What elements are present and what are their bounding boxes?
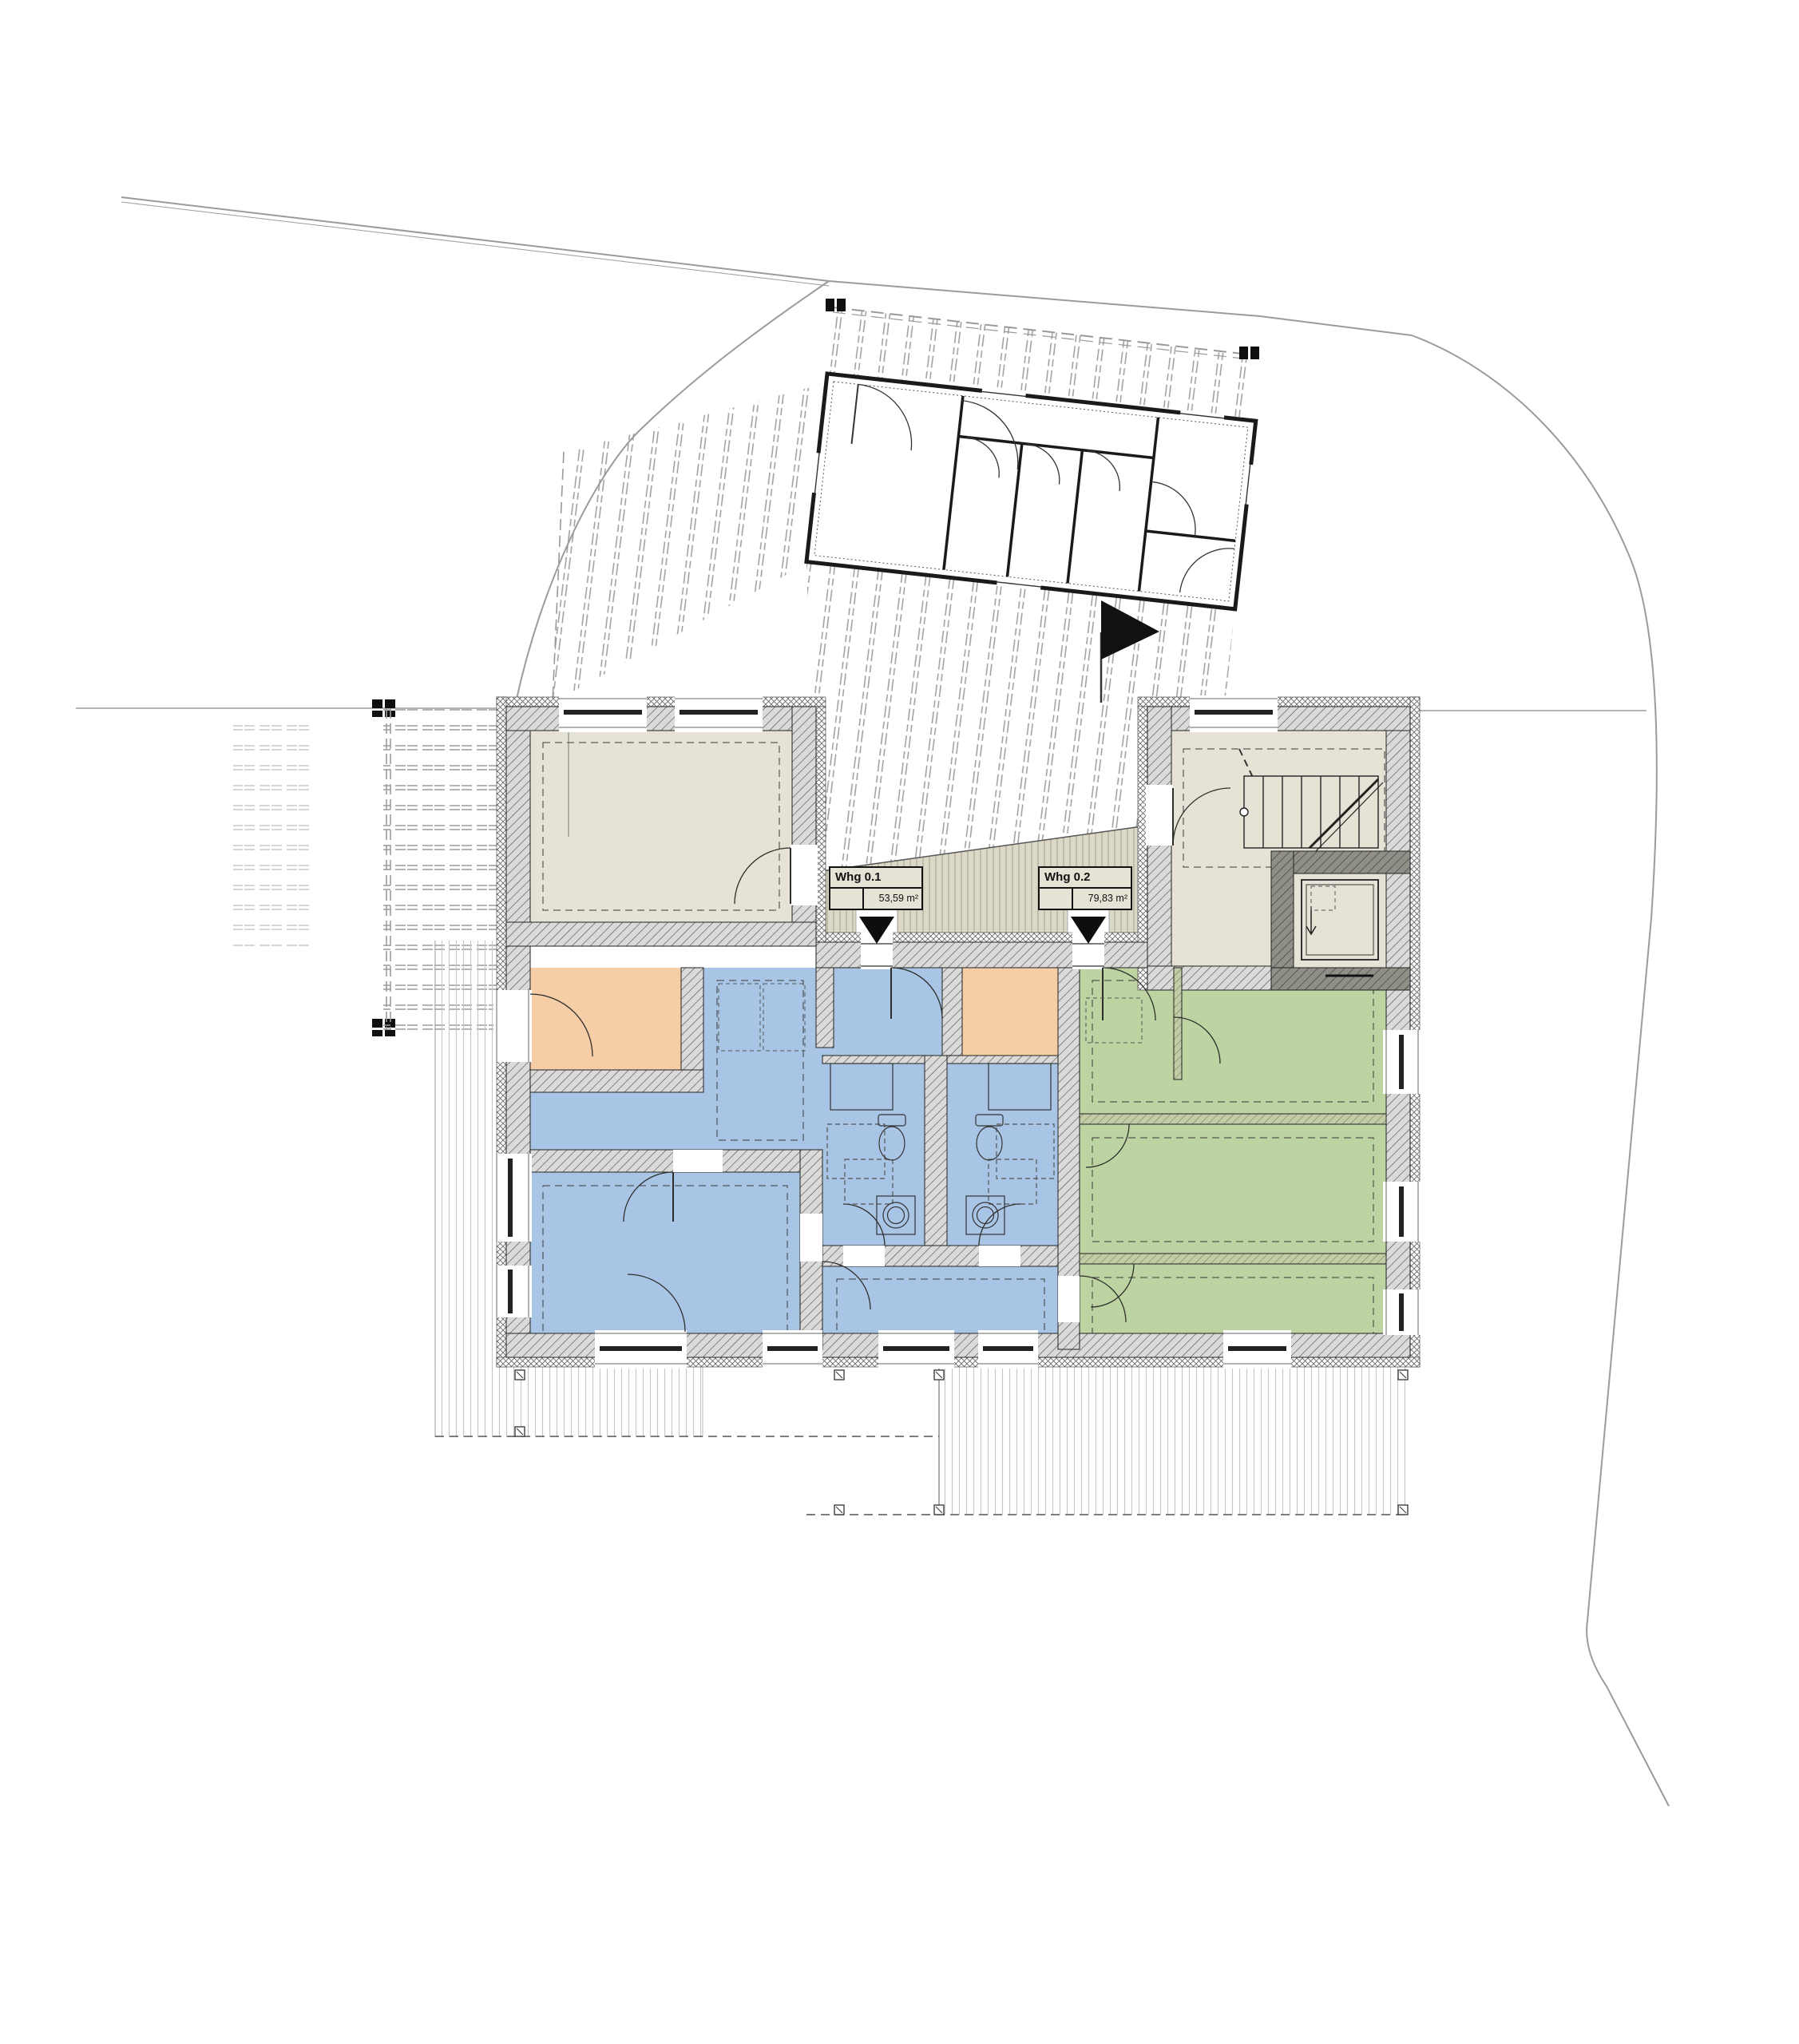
window-left-2 — [493, 1154, 532, 1242]
apartment-area: 53,59 m² — [864, 889, 921, 909]
window-bottom-5 — [1223, 1330, 1291, 1369]
window-right-2 — [1383, 1182, 1421, 1242]
window-bottom-4 — [978, 1330, 1038, 1369]
window-bottom-1 — [595, 1330, 687, 1369]
window-bottom-2 — [763, 1330, 822, 1369]
window-left-1 — [493, 990, 532, 1062]
apartment-label-whg-0-1: Whg 0.1 53,59 m² — [829, 866, 923, 910]
entrance-arrow-whg-0-1-icon — [859, 917, 894, 944]
label-empty-cell — [1040, 889, 1073, 909]
stairs — [1240, 776, 1383, 851]
site-drawing — [0, 0, 1799, 2044]
apartment-label-whg-0-2: Whg 0.2 79,83 m² — [1038, 866, 1132, 910]
apartment-name: Whg 0.1 — [830, 868, 921, 889]
label-empty-cell — [830, 889, 864, 909]
apartment-area: 79,83 m² — [1073, 889, 1131, 909]
window-top-1 — [559, 695, 647, 732]
window-bottom-3 — [878, 1330, 954, 1369]
window-right-3 — [1383, 1289, 1421, 1335]
room-orange-west — [530, 968, 681, 1070]
apartment-name: Whg 0.2 — [1040, 868, 1131, 889]
entrance-arrow-whg-0-2-icon — [1071, 917, 1106, 944]
floor-plan: Whg 0.1 53,59 m² Whg 0.2 79,83 m² — [0, 0, 1799, 2044]
window-top-2 — [675, 695, 763, 732]
room-storage-nw — [530, 731, 792, 922]
window-left-3 — [493, 1266, 532, 1317]
window-top-3 — [1190, 695, 1278, 732]
room-orange-center — [962, 968, 1058, 1056]
apartment-whg-0-2-area — [1080, 968, 1386, 1349]
window-right-1 — [1383, 1030, 1421, 1094]
terrace-south — [435, 1367, 1410, 1515]
